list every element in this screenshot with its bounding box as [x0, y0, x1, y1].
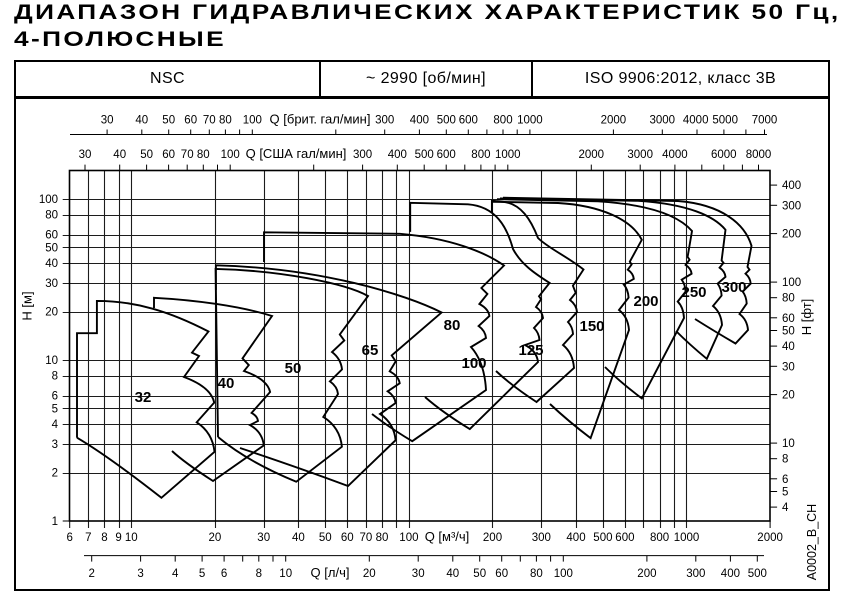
svg-text:1000: 1000 — [517, 115, 543, 127]
svg-text:6000: 6000 — [711, 149, 737, 161]
svg-text:5000: 5000 — [712, 115, 738, 127]
svg-text:6: 6 — [66, 532, 72, 544]
svg-text:100: 100 — [221, 149, 240, 161]
svg-text:60: 60 — [495, 568, 508, 580]
svg-text:50: 50 — [140, 149, 153, 161]
svg-text:250: 250 — [681, 284, 706, 301]
svg-text:200: 200 — [633, 293, 658, 310]
svg-text:200: 200 — [483, 532, 502, 544]
svg-text:20: 20 — [45, 307, 58, 319]
svg-text:10: 10 — [45, 355, 58, 367]
svg-text:50: 50 — [473, 568, 486, 580]
svg-text:10: 10 — [782, 438, 795, 450]
svg-text:20: 20 — [363, 568, 376, 580]
svg-text:10: 10 — [125, 532, 138, 544]
svg-text:100: 100 — [39, 194, 58, 206]
svg-text:100: 100 — [243, 115, 262, 127]
svg-text:400: 400 — [566, 532, 585, 544]
svg-text:2000: 2000 — [601, 115, 627, 127]
svg-text:100: 100 — [399, 532, 418, 544]
svg-text:2: 2 — [88, 568, 94, 580]
svg-text:Q [брит. гал/мин]: Q [брит. гал/мин] — [270, 112, 371, 127]
svg-text:80: 80 — [444, 317, 461, 334]
svg-text:8: 8 — [782, 454, 788, 466]
svg-text:4: 4 — [782, 502, 789, 514]
svg-text:600: 600 — [459, 115, 478, 127]
svg-text:Q [США гал/мин]: Q [США гал/мин] — [246, 146, 347, 161]
svg-text:70: 70 — [181, 149, 194, 161]
svg-text:30: 30 — [45, 278, 58, 290]
svg-text:400: 400 — [721, 568, 740, 580]
svg-text:2000: 2000 — [579, 149, 605, 161]
svg-text:50: 50 — [319, 532, 332, 544]
svg-text:60: 60 — [162, 149, 175, 161]
svg-text:400: 400 — [782, 180, 801, 192]
svg-text:3000: 3000 — [650, 115, 676, 127]
svg-text:100: 100 — [554, 568, 573, 580]
svg-text:100: 100 — [461, 355, 486, 372]
svg-text:6: 6 — [221, 568, 227, 580]
svg-text:8: 8 — [52, 371, 58, 383]
svg-text:60: 60 — [45, 230, 58, 242]
svg-text:60: 60 — [782, 313, 795, 325]
svg-text:4: 4 — [172, 568, 179, 580]
svg-text:2: 2 — [52, 468, 58, 480]
svg-text:150: 150 — [579, 318, 604, 335]
svg-text:80: 80 — [530, 568, 543, 580]
svg-text:4: 4 — [52, 419, 59, 431]
svg-text:3: 3 — [137, 568, 143, 580]
svg-text:800: 800 — [650, 532, 669, 544]
svg-text:5: 5 — [199, 568, 205, 580]
svg-text:80: 80 — [376, 532, 389, 544]
svg-text:8: 8 — [101, 532, 107, 544]
svg-text:500: 500 — [415, 149, 434, 161]
svg-text:50: 50 — [782, 326, 795, 338]
svg-text:100: 100 — [782, 277, 801, 289]
svg-text:8000: 8000 — [746, 149, 772, 161]
svg-text:6: 6 — [52, 391, 58, 403]
svg-text:50: 50 — [45, 243, 58, 255]
svg-text:300: 300 — [686, 568, 705, 580]
svg-text:80: 80 — [197, 149, 210, 161]
svg-text:200: 200 — [782, 229, 801, 241]
svg-text:400: 400 — [410, 115, 429, 127]
svg-text:40: 40 — [446, 568, 459, 580]
svg-text:40: 40 — [135, 115, 148, 127]
svg-text:A0002_B_CH: A0002_B_CH — [805, 504, 819, 580]
svg-text:30: 30 — [79, 149, 92, 161]
svg-text:3: 3 — [52, 439, 58, 451]
svg-text:2000: 2000 — [757, 532, 783, 544]
svg-text:40: 40 — [782, 341, 795, 353]
svg-text:40: 40 — [292, 532, 305, 544]
svg-text:9: 9 — [115, 532, 121, 544]
svg-text:1000: 1000 — [495, 149, 521, 161]
svg-text:1000: 1000 — [674, 532, 700, 544]
svg-text:H [фт]: H [фт] — [799, 299, 814, 336]
svg-text:300: 300 — [532, 532, 551, 544]
svg-text:40: 40 — [45, 258, 58, 270]
svg-text:7000: 7000 — [752, 115, 778, 127]
svg-text:80: 80 — [782, 293, 795, 305]
svg-text:60: 60 — [184, 115, 197, 127]
svg-text:4000: 4000 — [662, 149, 688, 161]
svg-text:125: 125 — [518, 342, 543, 359]
svg-text:20: 20 — [782, 390, 795, 402]
svg-text:4000: 4000 — [683, 115, 709, 127]
svg-text:70: 70 — [203, 115, 216, 127]
svg-text:6: 6 — [782, 474, 788, 486]
svg-text:40: 40 — [218, 375, 235, 392]
svg-text:300: 300 — [721, 279, 746, 296]
svg-text:80: 80 — [45, 210, 58, 222]
svg-text:Q [л/ч]: Q [л/ч] — [311, 565, 350, 580]
svg-text:300: 300 — [375, 115, 394, 127]
svg-text:32: 32 — [135, 389, 152, 406]
svg-text:H [м]: H [м] — [20, 291, 35, 320]
svg-text:800: 800 — [493, 115, 512, 127]
svg-text:5: 5 — [52, 404, 58, 416]
svg-text:3000: 3000 — [627, 149, 653, 161]
svg-text:600: 600 — [437, 149, 456, 161]
svg-text:30: 30 — [101, 115, 114, 127]
svg-text:70: 70 — [360, 532, 373, 544]
svg-text:65: 65 — [362, 342, 379, 359]
svg-text:30: 30 — [412, 568, 425, 580]
svg-text:10: 10 — [279, 568, 292, 580]
svg-text:400: 400 — [388, 149, 407, 161]
svg-text:600: 600 — [615, 532, 634, 544]
svg-text:1: 1 — [52, 516, 58, 528]
svg-text:500: 500 — [437, 115, 456, 127]
svg-text:50: 50 — [285, 360, 302, 377]
svg-text:5: 5 — [782, 487, 788, 499]
svg-text:200: 200 — [637, 568, 656, 580]
svg-text:8: 8 — [256, 568, 262, 580]
svg-text:7: 7 — [85, 532, 91, 544]
svg-text:500: 500 — [748, 568, 767, 580]
svg-text:Q [м³/ч]: Q [м³/ч] — [425, 529, 470, 544]
svg-text:60: 60 — [341, 532, 354, 544]
svg-text:50: 50 — [162, 115, 175, 127]
svg-text:20: 20 — [209, 532, 222, 544]
svg-text:80: 80 — [219, 115, 232, 127]
svg-text:30: 30 — [257, 532, 270, 544]
svg-text:500: 500 — [593, 532, 612, 544]
svg-text:300: 300 — [782, 200, 801, 212]
svg-text:300: 300 — [353, 149, 372, 161]
svg-text:30: 30 — [782, 361, 795, 373]
svg-text:800: 800 — [471, 149, 490, 161]
svg-text:40: 40 — [113, 149, 126, 161]
